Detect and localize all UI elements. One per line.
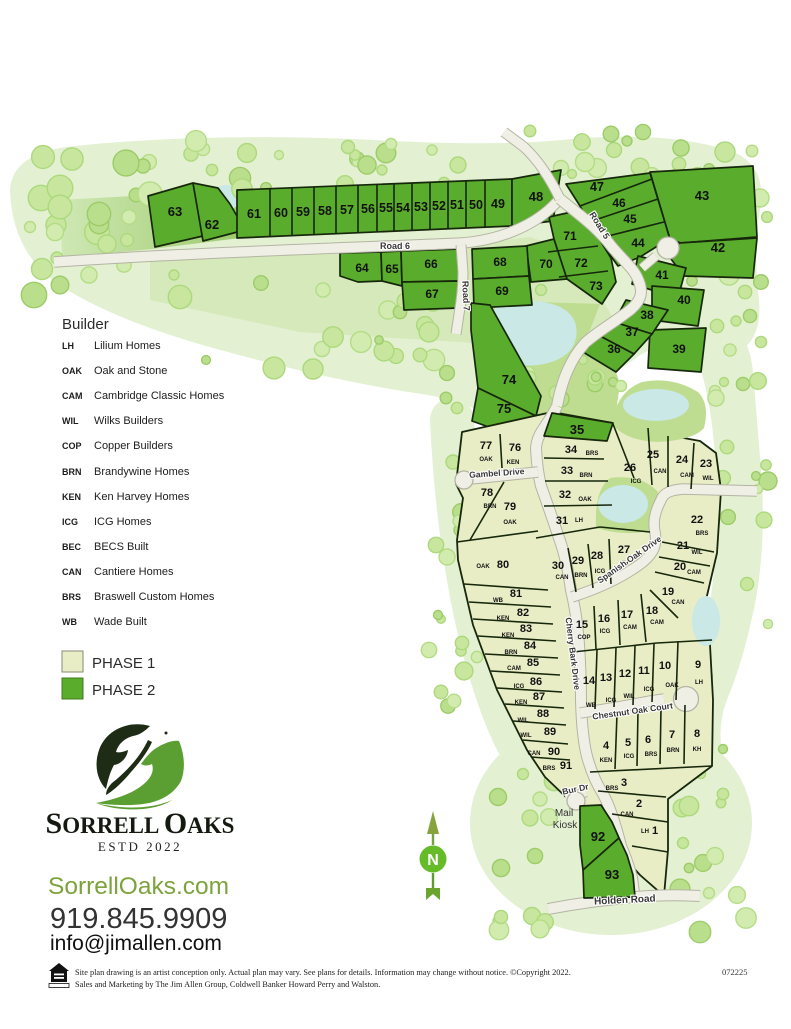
svg-text:LH: LH bbox=[62, 341, 74, 351]
svg-text:OAK: OAK bbox=[62, 366, 83, 376]
svg-text:69: 69 bbox=[495, 284, 509, 298]
svg-text:68: 68 bbox=[493, 255, 507, 269]
svg-text:63: 63 bbox=[168, 204, 182, 219]
svg-text:13: 13 bbox=[600, 672, 612, 684]
svg-text:80: 80 bbox=[497, 559, 509, 571]
svg-text:CAM: CAM bbox=[650, 620, 664, 626]
svg-text:WB: WB bbox=[493, 598, 504, 604]
svg-text:16: 16 bbox=[598, 613, 610, 625]
svg-text:WIL: WIL bbox=[518, 718, 529, 724]
svg-text:59: 59 bbox=[296, 205, 310, 219]
svg-text:KEN: KEN bbox=[515, 700, 528, 706]
svg-text:83: 83 bbox=[520, 623, 532, 635]
svg-text:81: 81 bbox=[510, 588, 522, 600]
svg-text:10: 10 bbox=[659, 660, 671, 672]
svg-text:22: 22 bbox=[691, 514, 703, 526]
svg-text:BRN: BRN bbox=[667, 748, 680, 754]
svg-text:ICG: ICG bbox=[631, 479, 642, 485]
svg-text:85: 85 bbox=[527, 657, 539, 669]
svg-text:61: 61 bbox=[247, 207, 261, 221]
svg-text:KEN: KEN bbox=[600, 758, 613, 764]
svg-text:N: N bbox=[427, 852, 439, 869]
svg-text:92: 92 bbox=[591, 829, 605, 844]
svg-text:76: 76 bbox=[509, 442, 521, 454]
svg-text:Site plan drawing is an artist: Site plan drawing is an artist conceptio… bbox=[75, 968, 571, 977]
svg-text:82: 82 bbox=[517, 607, 529, 619]
svg-text:46: 46 bbox=[612, 196, 626, 210]
svg-text:91: 91 bbox=[560, 760, 572, 772]
svg-text:CAN: CAN bbox=[654, 469, 667, 475]
svg-text:WIL: WIL bbox=[692, 550, 703, 556]
svg-text:51: 51 bbox=[450, 198, 464, 212]
svg-text:53: 53 bbox=[414, 200, 428, 214]
svg-text:WB: WB bbox=[586, 703, 597, 709]
svg-text:11: 11 bbox=[638, 665, 650, 677]
svg-text:919.845.9909: 919.845.9909 bbox=[50, 903, 227, 935]
svg-text:Wilks Builders: Wilks Builders bbox=[94, 415, 164, 427]
svg-text:BRS: BRS bbox=[586, 451, 599, 457]
svg-text:CAM: CAM bbox=[623, 625, 637, 631]
svg-text:Cantiere Homes: Cantiere Homes bbox=[94, 566, 174, 578]
svg-text:OAK: OAK bbox=[476, 564, 490, 570]
svg-text:47: 47 bbox=[590, 180, 604, 194]
svg-text:36: 36 bbox=[607, 342, 621, 356]
svg-text:OAK: OAK bbox=[479, 457, 493, 463]
svg-text:18: 18 bbox=[646, 605, 658, 617]
svg-text:25: 25 bbox=[647, 449, 659, 461]
svg-text:93: 93 bbox=[605, 867, 619, 882]
svg-text:OAK: OAK bbox=[665, 683, 679, 689]
svg-text:48: 48 bbox=[529, 189, 543, 204]
svg-text:ICG Homes: ICG Homes bbox=[94, 516, 152, 528]
svg-text:40: 40 bbox=[677, 293, 691, 307]
svg-text:35: 35 bbox=[570, 422, 584, 437]
svg-text:BRN: BRN bbox=[580, 473, 593, 479]
svg-text:1: 1 bbox=[652, 825, 658, 837]
svg-text:21: 21 bbox=[677, 540, 689, 552]
svg-text:39: 39 bbox=[672, 342, 686, 356]
svg-text:ICG: ICG bbox=[606, 698, 617, 704]
svg-text:45: 45 bbox=[623, 212, 637, 226]
svg-text:44: 44 bbox=[631, 236, 645, 250]
svg-text:Wade Built: Wade Built bbox=[94, 616, 147, 628]
svg-text:15: 15 bbox=[576, 619, 588, 631]
svg-text:73: 73 bbox=[589, 279, 603, 293]
svg-text:KEN: KEN bbox=[502, 633, 515, 639]
svg-text:Ken Harvey Homes: Ken Harvey Homes bbox=[94, 491, 190, 503]
svg-text:37: 37 bbox=[625, 325, 639, 339]
svg-text:90: 90 bbox=[548, 746, 560, 758]
svg-text:34: 34 bbox=[565, 444, 578, 456]
svg-text:7: 7 bbox=[669, 729, 675, 741]
svg-text:26: 26 bbox=[624, 462, 636, 474]
svg-text:CAN: CAN bbox=[528, 751, 541, 757]
svg-text:66: 66 bbox=[424, 257, 438, 271]
svg-text:42: 42 bbox=[711, 240, 725, 255]
svg-text:Road 7: Road 7 bbox=[460, 281, 472, 311]
svg-text:Builder: Builder bbox=[62, 316, 109, 333]
svg-text:WB: WB bbox=[62, 617, 77, 627]
svg-text:52: 52 bbox=[432, 199, 446, 213]
svg-text:KH: KH bbox=[693, 747, 702, 753]
svg-text:CAM: CAM bbox=[62, 391, 83, 401]
svg-text:5: 5 bbox=[625, 737, 631, 749]
svg-text:30: 30 bbox=[552, 560, 564, 572]
svg-text:Road 6: Road 6 bbox=[380, 241, 410, 251]
svg-text:29: 29 bbox=[572, 555, 584, 567]
svg-text:BECS Built: BECS Built bbox=[94, 541, 148, 553]
svg-text:74: 74 bbox=[502, 372, 517, 387]
svg-text:BRN: BRN bbox=[484, 504, 497, 510]
svg-text:8: 8 bbox=[694, 728, 700, 740]
svg-text:ICG: ICG bbox=[624, 754, 635, 760]
svg-text:BRS: BRS bbox=[606, 786, 619, 792]
svg-text:BRS: BRS bbox=[62, 592, 81, 602]
svg-text:KEN: KEN bbox=[497, 616, 510, 622]
svg-text:CAN: CAN bbox=[556, 575, 569, 581]
svg-text:2: 2 bbox=[636, 798, 642, 810]
svg-text:33: 33 bbox=[561, 465, 573, 477]
svg-text:9: 9 bbox=[695, 659, 701, 671]
svg-text:65: 65 bbox=[385, 262, 399, 276]
svg-text:49: 49 bbox=[491, 197, 505, 211]
svg-text:77: 77 bbox=[480, 440, 492, 452]
svg-text:38: 38 bbox=[640, 308, 654, 322]
svg-text:WIL: WIL bbox=[624, 694, 635, 700]
svg-text:ICG: ICG bbox=[514, 684, 525, 690]
svg-text:57: 57 bbox=[340, 203, 354, 217]
svg-text:ESTD 2022: ESTD 2022 bbox=[98, 839, 182, 854]
svg-text:58: 58 bbox=[318, 204, 332, 218]
svg-text:BEC: BEC bbox=[62, 542, 82, 552]
svg-text:54: 54 bbox=[396, 201, 410, 215]
svg-text:24: 24 bbox=[676, 454, 689, 466]
svg-text:4: 4 bbox=[603, 740, 610, 752]
svg-text:12: 12 bbox=[619, 668, 631, 680]
svg-text:89: 89 bbox=[544, 726, 556, 738]
svg-text:6: 6 bbox=[645, 734, 651, 746]
svg-text:86: 86 bbox=[530, 676, 542, 688]
svg-text:75: 75 bbox=[497, 401, 511, 416]
svg-text:19: 19 bbox=[662, 586, 674, 598]
svg-text:BRS: BRS bbox=[696, 531, 709, 537]
svg-text:ICG: ICG bbox=[62, 517, 78, 527]
svg-text:64: 64 bbox=[355, 261, 369, 275]
svg-text:Kiosk: Kiosk bbox=[553, 820, 578, 831]
svg-text:BRN: BRN bbox=[505, 650, 518, 656]
svg-text:BRS: BRS bbox=[543, 766, 556, 772]
svg-text:PHASE 1: PHASE 1 bbox=[92, 655, 155, 672]
svg-text:55: 55 bbox=[379, 201, 393, 215]
svg-text:28: 28 bbox=[591, 550, 603, 562]
svg-text:KEN: KEN bbox=[507, 460, 520, 466]
svg-text:88: 88 bbox=[537, 708, 549, 720]
svg-text:87: 87 bbox=[533, 691, 545, 703]
svg-text:79: 79 bbox=[504, 501, 516, 513]
svg-text:14: 14 bbox=[583, 675, 596, 687]
svg-text:Lilium Homes: Lilium Homes bbox=[94, 340, 161, 352]
svg-text:WIL: WIL bbox=[703, 476, 714, 482]
svg-text:23: 23 bbox=[700, 458, 712, 470]
svg-text:Sales and Marketing by The Jim: Sales and Marketing by The Jim Allen Gro… bbox=[75, 980, 380, 989]
svg-text:info@jimallen.com: info@jimallen.com bbox=[50, 932, 222, 955]
svg-text:Cambridge Classic Homes: Cambridge Classic Homes bbox=[94, 390, 225, 402]
svg-text:78: 78 bbox=[481, 487, 493, 499]
svg-text:20: 20 bbox=[674, 561, 686, 573]
svg-text:072225: 072225 bbox=[722, 967, 748, 977]
svg-text:3: 3 bbox=[621, 777, 627, 789]
svg-text:41: 41 bbox=[655, 268, 669, 282]
svg-text:62: 62 bbox=[205, 217, 219, 232]
svg-text:COP: COP bbox=[577, 635, 590, 641]
svg-text:BRN: BRN bbox=[62, 467, 82, 477]
svg-text:CAM: CAM bbox=[507, 666, 521, 672]
svg-text:56: 56 bbox=[361, 202, 375, 216]
svg-text:43: 43 bbox=[695, 188, 709, 203]
svg-text:Copper Builders: Copper Builders bbox=[94, 440, 173, 452]
svg-text:SorrellOaks.com: SorrellOaks.com bbox=[48, 873, 229, 900]
svg-text:CAM: CAM bbox=[680, 473, 694, 479]
svg-text:OAK: OAK bbox=[578, 497, 592, 503]
svg-text:WIL: WIL bbox=[521, 733, 532, 739]
svg-text:LH: LH bbox=[641, 829, 649, 835]
svg-text:Brandywine Homes: Brandywine Homes bbox=[94, 466, 190, 478]
svg-text:71: 71 bbox=[563, 229, 577, 243]
svg-text:72: 72 bbox=[574, 256, 588, 270]
svg-text:CAN: CAN bbox=[62, 567, 82, 577]
svg-text:ICG: ICG bbox=[644, 687, 655, 693]
svg-text:ICG: ICG bbox=[600, 629, 611, 635]
svg-text:LH: LH bbox=[695, 680, 703, 686]
svg-text:CAM: CAM bbox=[687, 570, 701, 576]
svg-text:32: 32 bbox=[559, 489, 571, 501]
svg-text:CAN: CAN bbox=[672, 600, 685, 606]
svg-text:60: 60 bbox=[274, 206, 288, 220]
svg-text:WIL: WIL bbox=[62, 416, 79, 426]
svg-text:67: 67 bbox=[425, 287, 439, 301]
svg-text:Mail: Mail bbox=[555, 808, 573, 819]
svg-text:LH: LH bbox=[575, 518, 583, 524]
svg-text:17: 17 bbox=[621, 609, 633, 621]
svg-text:OAK: OAK bbox=[503, 520, 517, 526]
svg-text:50: 50 bbox=[469, 198, 483, 212]
svg-text:70: 70 bbox=[539, 257, 553, 271]
svg-text:CAN: CAN bbox=[621, 812, 634, 818]
svg-text:BRN: BRN bbox=[575, 573, 588, 579]
svg-text:Braswell Custom Homes: Braswell Custom Homes bbox=[94, 591, 215, 603]
svg-text:84: 84 bbox=[524, 640, 537, 652]
svg-text:KEN: KEN bbox=[62, 492, 81, 502]
svg-text:Oak and Stone: Oak and Stone bbox=[94, 365, 167, 377]
svg-text:COP: COP bbox=[62, 441, 82, 451]
svg-text:BRS: BRS bbox=[645, 752, 658, 758]
svg-text:PHASE 2: PHASE 2 bbox=[92, 682, 155, 699]
svg-text:31: 31 bbox=[556, 515, 568, 527]
